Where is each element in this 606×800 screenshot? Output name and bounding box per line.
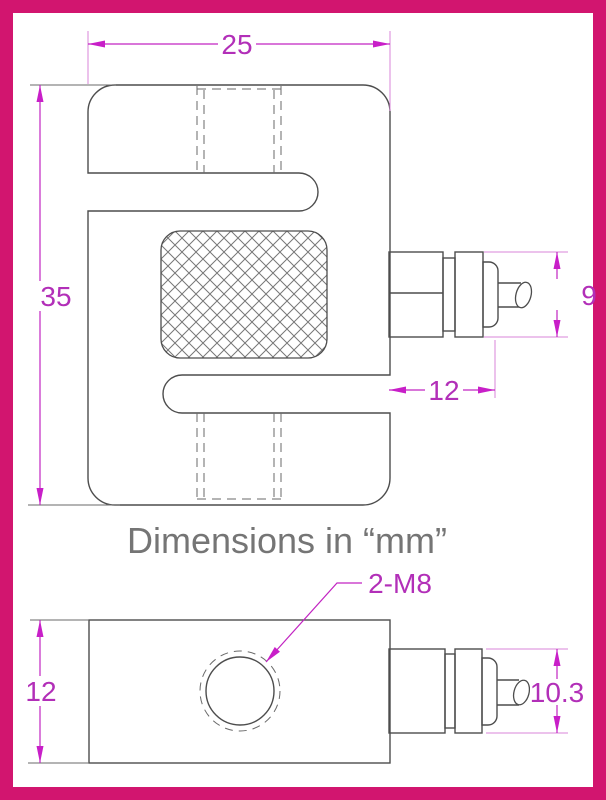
- drawing-canvas: 25 35 9 12 Dimensions: [0, 0, 606, 800]
- frame-border: [7, 7, 600, 794]
- dim-connector-length-label: 12: [428, 375, 459, 406]
- dim-top-width-label: 25: [221, 29, 252, 60]
- dim-connector-103-label: 10.3: [530, 677, 585, 708]
- load-cell-dimension-drawing: 25 35 9 12 Dimensions: [0, 0, 606, 800]
- units-note: Dimensions in “mm”: [127, 520, 447, 561]
- thread-label: 2-M8: [368, 568, 432, 599]
- dim-top-height-label: 35: [40, 281, 71, 312]
- dim-bottom-thickness-label: 12: [25, 676, 56, 707]
- hatched-strain-area: [161, 231, 327, 358]
- dim-connector-9-label: 9: [581, 280, 597, 311]
